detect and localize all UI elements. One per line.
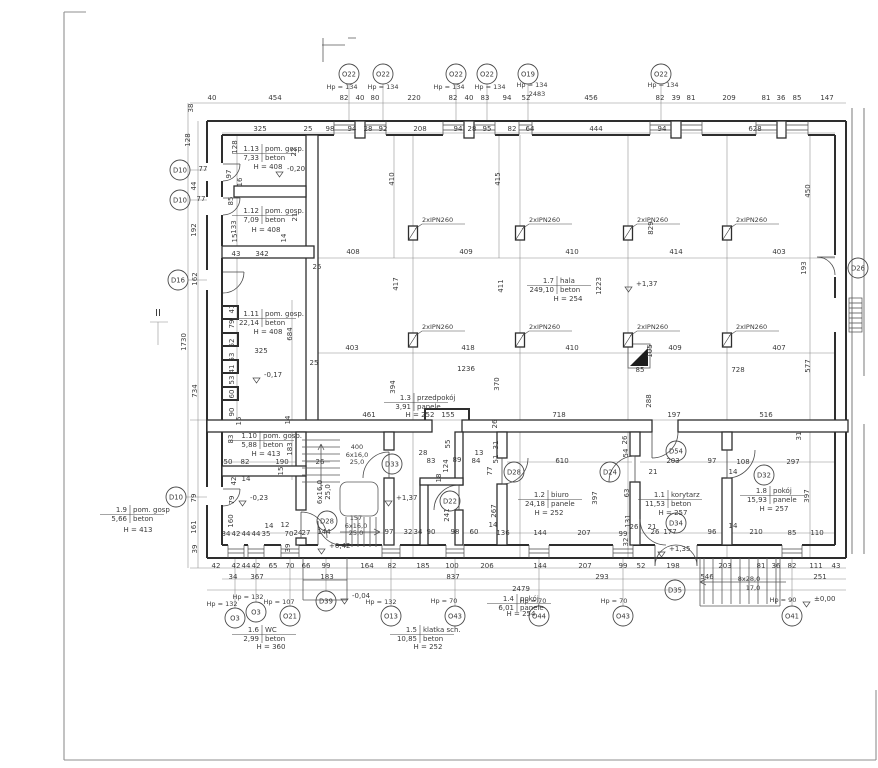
level-triangle-icon: [318, 549, 325, 554]
dim-label: 81: [762, 94, 771, 102]
dim-label-vertical: 41: [228, 305, 236, 314]
dim-label: 408: [346, 248, 359, 256]
dim-label-vertical: 63: [623, 489, 631, 498]
dim-label-vertical: 55: [444, 440, 452, 449]
dim-label: 409: [459, 248, 472, 256]
marker-id: D10: [173, 166, 187, 174]
annotation-label: Hp = 134: [517, 81, 548, 89]
marker-D39: D39: [316, 591, 336, 611]
room-name: pokój: [773, 487, 792, 495]
steel-column: 2xIPN260: [723, 216, 780, 240]
marker-O22: O22: [339, 64, 359, 84]
column-label-leader: [415, 224, 465, 229]
room-number: 1.10: [241, 432, 257, 440]
dim-label: 14: [729, 468, 738, 476]
column-label-leader: [522, 224, 572, 229]
dim-label-vertical: 128: [231, 140, 239, 153]
room-floor-finish: beton: [671, 500, 691, 508]
dim-label: 98: [326, 125, 335, 133]
annotation-label: 157: [350, 514, 362, 522]
dim-label-vertical: 394: [389, 380, 397, 394]
dim-label: 251: [813, 573, 826, 581]
dim-label: 25: [310, 359, 319, 367]
marker-id: O21: [283, 612, 297, 620]
dim-label: 297: [786, 458, 799, 466]
level-mark: -0,23: [239, 494, 268, 506]
marker-O43: O43: [445, 606, 465, 626]
dim-label: 407: [772, 344, 785, 352]
steel-columns: 2xIPN2602xIPN2602xIPN2602xIPN2602xIPN260…: [409, 216, 780, 347]
room-label-1.2: 1.2biuro24,18paneleH = 252: [518, 490, 582, 517]
dim-label-vertical: 18: [435, 474, 443, 483]
dim-label: 82: [449, 94, 458, 102]
dim-label: 70: [285, 530, 294, 538]
dim-label: 96: [708, 528, 717, 536]
dim-label: 28: [468, 125, 477, 133]
room-height: H = 252: [414, 643, 443, 651]
marker-O22: O22: [446, 64, 466, 84]
marker-id: D39: [319, 597, 333, 605]
dim-label: 99: [619, 562, 628, 570]
column-type-label: 2xIPN260: [736, 216, 767, 224]
annotation-label: Hp = 107: [264, 598, 295, 606]
marker-id: D33: [385, 460, 399, 468]
dim-label: 85: [636, 366, 645, 374]
dim-label: 206: [480, 562, 494, 570]
dim-label-vertical: 51: [492, 455, 500, 464]
annotation-label: Hp = 132: [233, 593, 264, 601]
dim-label: 89: [453, 456, 462, 464]
room-height: H = 257: [659, 509, 688, 517]
dim-label-vertical: 39: [284, 544, 292, 553]
room-area: 11,53: [645, 500, 665, 508]
column-label-leader: [630, 224, 680, 229]
wall-left-rooms-divider: [306, 135, 318, 428]
dim-label: 42: [232, 562, 241, 570]
room-height: H = 408: [254, 328, 283, 336]
dim-label: 325: [254, 347, 267, 355]
dim-label-vertical: 31: [492, 441, 500, 450]
dim-label: 40: [208, 94, 217, 102]
marker-id: D10: [173, 196, 187, 204]
dim-label: 80: [371, 94, 380, 102]
marker-id: D22: [443, 497, 457, 505]
room-label-1.6: 1.6WC2,99betonH = 360: [232, 625, 296, 651]
annotation-label: Hp = 70: [431, 597, 458, 605]
room-area: 2,99: [243, 635, 259, 643]
marker-id: O19: [521, 70, 535, 78]
dim-label-vertical: 15: [231, 234, 239, 243]
dim-label: 516: [759, 411, 773, 419]
room-area: 5,88: [241, 441, 257, 449]
dim-label: 728: [731, 366, 744, 374]
dim-label-vertical: 6x16,0: [316, 480, 324, 504]
room-number: 1.12: [243, 207, 259, 215]
dim-label: 461: [362, 411, 375, 419]
annotation-label: Hp = 132: [207, 600, 238, 608]
dim-label: 185: [416, 562, 429, 570]
dim-label-vertical: 131: [624, 514, 632, 527]
dim-label: 2479: [512, 585, 530, 593]
marker-O13: O13: [381, 606, 401, 626]
dim-label: 83: [427, 457, 436, 465]
dim-label: 293: [595, 573, 608, 581]
dim-label: 42: [232, 530, 241, 538]
dim-label-vertical: 1730: [180, 333, 188, 351]
dim-label: 13: [475, 449, 484, 457]
column-label-leader: [630, 331, 680, 336]
dim-label: 25: [313, 263, 322, 271]
dim-label: 90: [427, 528, 436, 536]
room-number: 1.4: [503, 595, 515, 603]
room-number: 1.6: [248, 626, 260, 634]
dim-label: 40: [465, 94, 474, 102]
level-value: +0,42: [329, 542, 350, 550]
room-name: przedpokój: [417, 394, 456, 402]
room-area: 24,18: [525, 500, 545, 508]
level-value: +1,37: [396, 494, 417, 502]
dim-label: 144: [533, 529, 547, 537]
dim-label: 82: [656, 94, 665, 102]
dim-label-vertical: 161: [190, 520, 198, 533]
dim-label-vertical: 53: [228, 353, 236, 362]
dim-label: 66: [302, 562, 311, 570]
dim-label: 60: [470, 528, 479, 536]
room-label-1.1: 1.1korytarz11,53betonH = 257: [638, 490, 702, 517]
dim-label: 110: [810, 529, 823, 537]
room-name: pokój: [520, 595, 539, 603]
room-floor-finish: beton: [133, 515, 153, 523]
room-area: 7,33: [243, 154, 259, 162]
room-area: 3,91: [395, 403, 411, 411]
dim-label-vertical: 79: [228, 496, 236, 505]
column-type-label: 2xIPN260: [422, 216, 453, 224]
room-label-1.5: 1.5klatka sch.10,85betonH = 252: [390, 625, 461, 651]
column-type-label: 2xIPN260: [637, 323, 668, 331]
dim-label: 94: [503, 94, 512, 102]
dim-label: 147: [820, 94, 833, 102]
dim-label-vertical: 38: [187, 104, 195, 113]
annotation-label: Hp = 134: [475, 83, 506, 91]
dim-label-vertical: 105: [646, 344, 654, 357]
dim-label: 52: [637, 562, 646, 570]
dim-label-vertical: 397: [591, 491, 599, 504]
level-value: +1,35: [669, 545, 690, 553]
dim-label-vertical: 85: [227, 197, 235, 206]
dim-label: 34: [414, 528, 423, 536]
dim-label-vertical: 193: [800, 261, 808, 274]
dim-label-vertical: 14: [280, 233, 288, 242]
dim-label: 77: [197, 195, 206, 203]
room-height: H = 254: [554, 295, 583, 303]
dim-label: 44: [242, 562, 251, 570]
dim-label: 610: [555, 457, 568, 465]
room-number: 1.8: [756, 487, 767, 495]
room-floor-finish: beton: [265, 635, 285, 643]
dim-label-vertical: 90: [228, 408, 236, 417]
room-floor-finish: beton: [265, 154, 285, 162]
dim-label: 36: [777, 94, 786, 102]
column-label-leader: [729, 331, 779, 336]
marker-D28: D28: [504, 462, 524, 482]
annotation-label: 17,0: [746, 584, 760, 592]
marker-id: O22: [376, 70, 390, 78]
room-name: korytarz: [671, 491, 700, 499]
room-floor-finish: beton: [423, 635, 443, 643]
dim-label: 1236: [457, 365, 475, 373]
dim-label: 403: [345, 344, 358, 352]
marker-D16: D16: [168, 270, 188, 290]
dim-label: 81: [757, 562, 766, 570]
room-number: 1.9: [116, 506, 127, 514]
dim-label: 164: [360, 562, 374, 570]
annotation-label: 25,0: [349, 529, 363, 537]
marker-id: D26: [851, 264, 865, 272]
room-floor-finish: panele: [773, 496, 797, 504]
dim-label-vertical: 410: [388, 172, 396, 185]
marker-id: D28: [320, 517, 334, 525]
dim-label: 144: [533, 562, 547, 570]
dim-label: 210: [749, 528, 762, 536]
room-number: 1.7: [543, 277, 554, 285]
level-value: -0,23: [250, 494, 268, 502]
dim-label: 83: [481, 94, 490, 102]
level-value: +1,37: [636, 280, 657, 288]
dim-label-vertical: 162: [191, 272, 199, 285]
dim-label: 108: [736, 458, 749, 466]
dim-label: 628: [748, 125, 761, 133]
dim-label: 410: [565, 344, 578, 352]
dim-label: 837: [446, 573, 459, 581]
dim-label-vertical: 397: [803, 489, 811, 502]
steel-column: 2xIPN260: [516, 216, 573, 240]
dim-label-vertical: 370: [493, 377, 501, 390]
dim-label-vertical: 133: [230, 220, 238, 233]
floor-plan-drawing: 2xIPN2602xIPN2602xIPN2602xIPN2602xIPN260…: [0, 0, 878, 768]
room-floor-finish: panele: [417, 403, 441, 411]
level-value: -0,17: [264, 371, 282, 379]
dim-label: 144: [317, 528, 331, 536]
marker-id: D54: [669, 447, 683, 455]
room-name: hala: [560, 277, 575, 285]
marker-id: O22: [449, 70, 463, 78]
dim-label: 34: [229, 573, 238, 581]
dim-label-vertical: 288: [645, 394, 653, 407]
dim-label: 207: [577, 529, 590, 537]
marker-D24: D24: [600, 462, 620, 482]
dim-label: 42: [252, 562, 261, 570]
dim-label-vertical: 62: [228, 339, 236, 348]
dim-label: 12: [281, 521, 290, 529]
dim-label: 410: [565, 248, 578, 256]
level-triangle-icon: [658, 552, 665, 557]
marker-O41: O41: [782, 606, 802, 626]
dim-label: 14: [729, 522, 738, 530]
dim-label-vertical: 41: [228, 365, 236, 374]
dim-label-vertical: 417: [392, 277, 400, 290]
dim-label-vertical: 26: [491, 419, 499, 428]
dim-label: 21: [649, 468, 658, 476]
room-label-1.7: 1.7hala249,10betonH = 254: [527, 276, 591, 303]
steel-column: 2xIPN260: [516, 323, 573, 347]
room-number: 1.2: [534, 491, 545, 499]
level-mark: +1,35: [658, 545, 690, 557]
dim-label-vertical: 97: [225, 170, 233, 179]
dim-label-vertical: 44: [190, 181, 198, 190]
room-floor-finish: beton: [265, 319, 285, 327]
dim-label: 444: [589, 125, 603, 133]
dim-label-vertical: 829: [647, 221, 655, 234]
dim-label-vertical: 79: [190, 494, 198, 503]
dim-label-vertical: 192: [190, 223, 198, 236]
dim-label: 367: [250, 573, 263, 581]
dim-label: 82: [388, 562, 397, 570]
room-floor-finish: panele: [551, 500, 575, 508]
room-height: H = 413: [124, 526, 153, 534]
dim-label-vertical: 39: [191, 545, 199, 554]
scanned-floor-plan-page: 2xIPN2602xIPN2602xIPN2602xIPN2602xIPN260…: [0, 0, 878, 768]
room-number: 1.5: [406, 626, 417, 634]
marker-id: O3: [230, 614, 240, 622]
dim-label: 546: [700, 573, 714, 581]
dim-label: 28: [364, 125, 373, 133]
room-area: 22,14: [239, 319, 260, 327]
dim-label: 32: [404, 528, 413, 536]
marker-D10: D10: [170, 190, 190, 210]
dim-label-vertical: 684: [286, 327, 294, 341]
dim-label-vertical: 16: [236, 177, 244, 186]
annotation-label: 8x28,0: [738, 575, 760, 583]
column-label-leader: [522, 331, 572, 336]
dim-label: 99: [619, 530, 628, 538]
marker-id: D28: [507, 468, 521, 476]
dim-label: 418: [461, 344, 474, 352]
marker-id: O22: [480, 70, 494, 78]
dim-label: 64: [526, 125, 535, 133]
column-label-leader: [729, 224, 779, 229]
room-area: 15,93: [747, 496, 767, 504]
dim-label-vertical: 415: [494, 172, 502, 185]
level-triangle-icon: [625, 287, 632, 292]
dim-label: 454: [268, 94, 282, 102]
column-type-label: 2xIPN260: [736, 323, 767, 331]
dim-label: 414: [669, 248, 683, 256]
room-area: 7,09: [243, 216, 259, 224]
dim-label: 111: [809, 562, 822, 570]
dim-label-vertical: 32: [622, 538, 630, 547]
level-value: -0,20: [287, 165, 305, 173]
room-height: H = 408: [252, 226, 281, 234]
room-area: 5,66: [111, 515, 127, 523]
level-mark: +0,42: [318, 542, 350, 554]
dim-label: 35: [262, 530, 271, 538]
marker-id: D35: [668, 586, 682, 594]
dim-label-vertical: 734: [191, 384, 199, 398]
annotation-label: Hp = 134: [434, 83, 465, 91]
dim-label: 183: [320, 573, 333, 581]
dim-label: 208: [413, 125, 426, 133]
dim-label: 81: [687, 94, 696, 102]
registration-mark: [322, 38, 356, 62]
room-number: 1.13: [243, 145, 259, 153]
annotation-label: 25,0: [350, 458, 364, 466]
annotation-label: Hp = 90: [770, 596, 797, 604]
dim-label-vertical: 54: [622, 448, 630, 457]
steel-column: 2xIPN260: [409, 323, 466, 347]
dim-label-vertical: 25,0: [324, 484, 332, 500]
dim-label: 85: [793, 94, 802, 102]
dim-label: 198: [666, 562, 679, 570]
dim-label: 197: [667, 411, 680, 419]
dim-label-vertical: 77: [486, 467, 494, 476]
dim-label: 14: [242, 475, 251, 483]
annotation-label: Hp = 70: [601, 597, 628, 605]
room-height: H = 413: [252, 450, 281, 458]
room-label-1.8: 1.8pokój15,93paneleH = 257: [740, 486, 804, 513]
hatched-window-right: [849, 298, 862, 332]
column-type-label: 2xIPN260: [529, 216, 560, 224]
dim-label: 44: [252, 530, 261, 538]
dim-label: 99: [322, 562, 331, 570]
dim-label: 207: [578, 562, 591, 570]
dim-label-vertical: 53: [228, 376, 236, 385]
level-triangle-icon: [276, 172, 283, 177]
room-height: H = 360: [257, 643, 286, 651]
dim-label: 36: [772, 562, 781, 570]
dim-label-vertical: 160: [227, 514, 235, 527]
room-name: klatka sch.: [423, 626, 461, 634]
room-area: 10,85: [397, 635, 417, 643]
dim-label: 98: [451, 528, 460, 536]
dim-label: 84: [472, 457, 481, 465]
room-floor-finish: beton: [560, 286, 580, 294]
dim-label: 92: [379, 125, 388, 133]
steel-column: 2xIPN260: [409, 216, 466, 240]
dim-label-vertical: 124: [442, 459, 450, 473]
room-name: WC: [265, 626, 277, 634]
room-area: 249,10: [530, 286, 555, 294]
annotation-label: Hp = 132: [366, 598, 397, 606]
dim-label-vertical: 450: [804, 184, 812, 197]
dim-label: 94: [348, 125, 357, 133]
dim-label: 26: [651, 528, 660, 536]
dim-label: 65: [269, 562, 278, 570]
dim-label-vertical: 79: [228, 320, 236, 329]
room-name: pom. gosp.: [265, 145, 304, 153]
annotation-label: Hp = 134: [648, 81, 679, 89]
dim-label: 209: [722, 94, 735, 102]
column-label-leader: [415, 331, 465, 336]
room-name: biuro: [551, 491, 569, 499]
dim-label-vertical: 15: [277, 467, 285, 476]
room-height: H = 254: [507, 610, 536, 618]
marker-O21: O21: [280, 606, 300, 626]
dim-label: 85: [788, 529, 797, 537]
dim-label: 77: [199, 165, 208, 173]
marker-id: O22: [654, 70, 668, 78]
dim-label: 97: [708, 457, 717, 465]
marker-id: O22: [342, 70, 356, 78]
marker-id: O13: [384, 612, 398, 620]
dim-label: 220: [407, 94, 420, 102]
dim-label-vertical: 26: [621, 435, 629, 444]
dim-label: 82: [508, 125, 517, 133]
dim-label-vertical: 183: [286, 442, 294, 455]
dim-label: 82: [241, 458, 250, 466]
room-name: pom. gosp.: [263, 432, 302, 440]
dim-label: 43: [232, 250, 241, 258]
dim-label-vertical: 31: [795, 432, 803, 441]
